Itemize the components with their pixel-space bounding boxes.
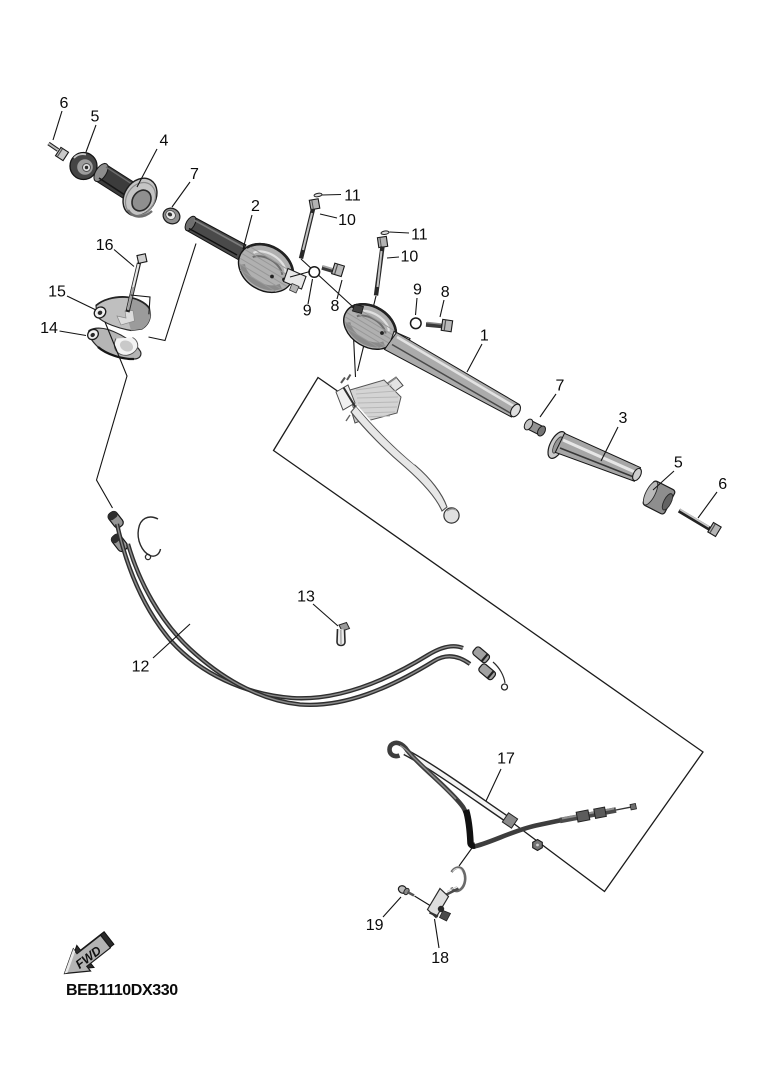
svg-text:3: 3 <box>619 410 628 427</box>
svg-text:5: 5 <box>674 455 683 472</box>
svg-text:6: 6 <box>718 476 727 493</box>
svg-text:16: 16 <box>96 237 114 254</box>
svg-text:8: 8 <box>441 284 450 301</box>
svg-text:2: 2 <box>251 198 260 215</box>
svg-text:10: 10 <box>401 249 419 266</box>
svg-text:12: 12 <box>132 659 150 676</box>
svg-text:17: 17 <box>497 751 515 768</box>
svg-text:6: 6 <box>60 95 69 112</box>
svg-text:10: 10 <box>338 212 356 229</box>
svg-text:5: 5 <box>91 108 100 125</box>
svg-text:9: 9 <box>303 303 312 320</box>
svg-text:7: 7 <box>190 166 199 183</box>
svg-text:9: 9 <box>413 282 422 299</box>
svg-text:15: 15 <box>48 284 66 301</box>
svg-text:13: 13 <box>297 588 315 605</box>
svg-text:14: 14 <box>40 320 58 337</box>
svg-text:8: 8 <box>330 298 339 315</box>
svg-text:18: 18 <box>431 950 449 967</box>
svg-text:11: 11 <box>411 226 428 243</box>
svg-text:19: 19 <box>366 917 384 934</box>
svg-text:7: 7 <box>556 378 565 395</box>
svg-text:11: 11 <box>344 187 361 204</box>
svg-text:4: 4 <box>160 132 169 149</box>
svg-text:1: 1 <box>480 328 489 345</box>
svg-text:BEB1110DX330: BEB1110DX330 <box>66 982 178 999</box>
